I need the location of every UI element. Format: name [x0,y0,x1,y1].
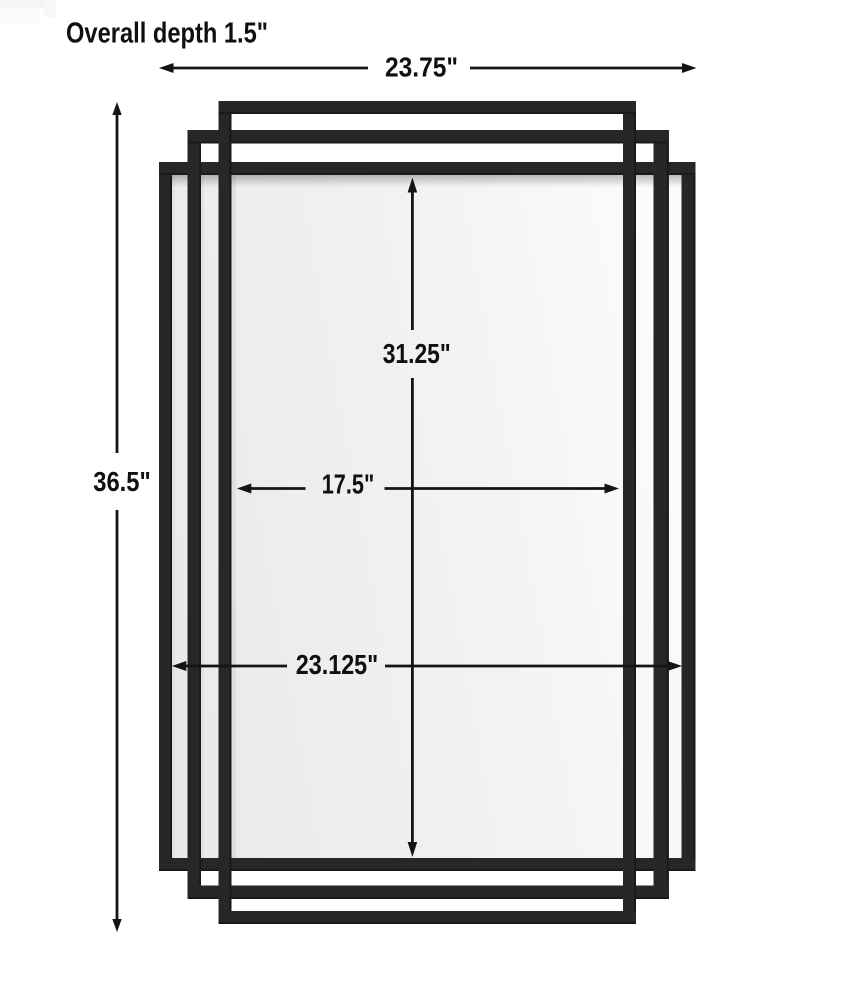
svg-text:Overall depth 1.5": Overall depth 1.5" [66,18,268,50]
svg-text:36.5": 36.5" [93,466,151,497]
svg-text:31.25": 31.25" [383,338,451,369]
svg-text:23.125": 23.125" [296,649,379,680]
svg-text:23.75": 23.75" [385,52,458,83]
svg-text:17.5": 17.5" [322,469,375,500]
